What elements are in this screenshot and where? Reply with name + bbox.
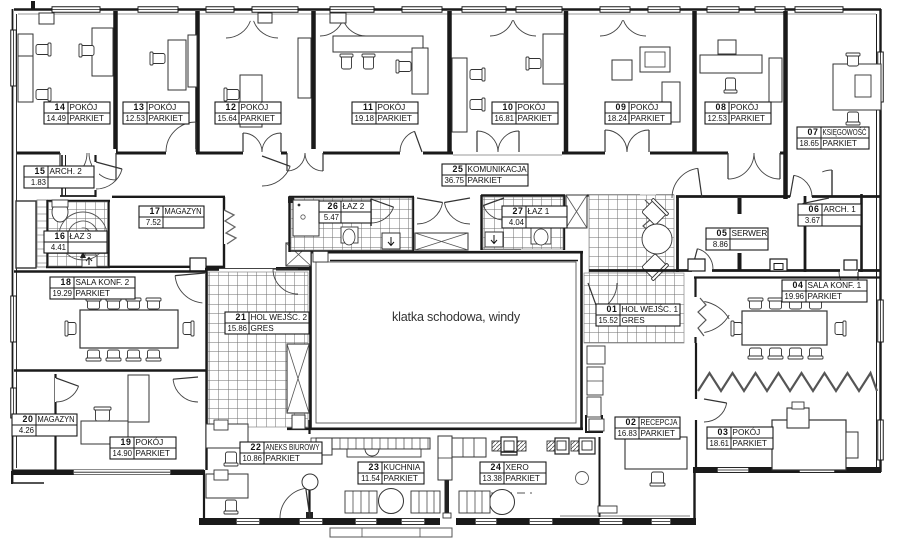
- svg-text:19.29: 19.29: [52, 289, 72, 298]
- svg-text:4.04: 4.04: [509, 218, 525, 227]
- svg-text:HOL WEJŚC. 1: HOL WEJŚC. 1: [622, 303, 679, 314]
- svg-text:POKÓJ: POKÓJ: [733, 427, 761, 437]
- svg-text:05: 05: [717, 228, 728, 238]
- svg-text:02: 02: [626, 417, 637, 427]
- svg-text:4.41: 4.41: [51, 243, 66, 252]
- svg-text:PARKIET: PARKIET: [506, 474, 540, 483]
- svg-text:18: 18: [61, 277, 72, 287]
- svg-text:POKÓJ: POKÓJ: [631, 102, 659, 112]
- svg-text:7.52: 7.52: [146, 218, 161, 227]
- svg-text:20: 20: [23, 414, 34, 424]
- svg-text:04: 04: [793, 280, 804, 290]
- svg-text:SALA KONF. 1: SALA KONF. 1: [808, 281, 862, 290]
- svg-text:KSIĘGOWOŚĆ: KSIĘGOWOŚĆ: [823, 126, 867, 137]
- svg-text:POKÓJ: POKÓJ: [149, 102, 177, 112]
- svg-text:POKÓJ: POKÓJ: [378, 102, 406, 112]
- svg-text:16.83: 16.83: [617, 429, 637, 438]
- svg-text:19: 19: [121, 437, 132, 447]
- svg-text:PARKIET: PARKIET: [823, 139, 857, 148]
- svg-text:PARKIET: PARKIET: [378, 114, 412, 123]
- svg-text:ŁAZ 3: ŁAZ 3: [70, 232, 92, 241]
- svg-text:XERO: XERO: [506, 463, 529, 472]
- svg-text:5.47: 5.47: [324, 213, 339, 222]
- svg-text:19.96: 19.96: [784, 292, 804, 301]
- svg-text:3.67: 3.67: [805, 216, 820, 225]
- svg-text:ARCH. 1: ARCH. 1: [824, 205, 857, 214]
- svg-text:PARKIET: PARKIET: [808, 292, 842, 301]
- svg-text:MAGAZYN: MAGAZYN: [38, 415, 75, 424]
- svg-text:KOMUNIKACJA: KOMUNIKACJA: [468, 165, 528, 174]
- svg-text:PARKIET: PARKIET: [136, 449, 170, 458]
- svg-text:PARKIET: PARKIET: [518, 114, 552, 123]
- svg-text:PARKIET: PARKIET: [241, 114, 275, 123]
- svg-text:17: 17: [150, 206, 161, 216]
- svg-text:19.18: 19.18: [354, 114, 374, 123]
- svg-text:18.24: 18.24: [607, 114, 627, 123]
- svg-text:25: 25: [453, 164, 464, 174]
- svg-text:PARKIET: PARKIET: [631, 114, 665, 123]
- svg-text:10.86: 10.86: [242, 454, 262, 463]
- svg-text:16: 16: [55, 231, 66, 241]
- svg-text:PARKIET: PARKIET: [76, 289, 110, 298]
- svg-text:13.38: 13.38: [482, 474, 502, 483]
- svg-text:PARKIET: PARKIET: [731, 114, 765, 123]
- svg-text:PARKIET: PARKIET: [384, 474, 418, 483]
- svg-text:PARKIET: PARKIET: [149, 114, 183, 123]
- svg-text:klatka schodowa, windy: klatka schodowa, windy: [392, 310, 521, 324]
- svg-text:15.64: 15.64: [217, 114, 237, 123]
- svg-text:18.65: 18.65: [799, 139, 819, 148]
- svg-text:POKÓJ: POKÓJ: [136, 437, 164, 447]
- svg-text:12.53: 12.53: [125, 114, 145, 123]
- svg-text:03: 03: [718, 427, 729, 437]
- svg-text:11.54: 11.54: [361, 474, 381, 483]
- svg-text:01: 01: [607, 304, 618, 314]
- svg-text:PARKIET: PARKIET: [733, 439, 767, 448]
- svg-text:15.86: 15.86: [227, 324, 247, 333]
- svg-text:PARKIET: PARKIET: [70, 114, 104, 123]
- svg-text:KUCHNIA: KUCHNIA: [384, 463, 421, 472]
- svg-text:POKÓJ: POKÓJ: [241, 102, 269, 112]
- svg-text:15.52: 15.52: [598, 316, 618, 325]
- svg-text:POKÓJ: POKÓJ: [70, 102, 98, 112]
- svg-text:11: 11: [363, 102, 374, 112]
- svg-text:SERWER: SERWER: [732, 229, 768, 238]
- svg-text:PARKIET: PARKIET: [641, 429, 675, 438]
- svg-text:POKÓJ: POKÓJ: [518, 102, 546, 112]
- svg-text:08: 08: [716, 102, 727, 112]
- svg-text:21: 21: [236, 312, 247, 322]
- svg-text:12.53: 12.53: [707, 114, 727, 123]
- svg-text:PARKIET: PARKIET: [468, 176, 502, 185]
- svg-text:SALA KONF. 2: SALA KONF. 2: [76, 278, 130, 287]
- svg-text:POKÓJ: POKÓJ: [731, 102, 759, 112]
- svg-text:HOL WEJŚC. 2: HOL WEJŚC. 2: [251, 311, 308, 322]
- svg-text:14.49: 14.49: [46, 114, 66, 123]
- svg-text:13: 13: [134, 102, 145, 112]
- svg-text:12: 12: [226, 102, 237, 112]
- svg-text:36.75: 36.75: [444, 176, 464, 185]
- svg-text:14.90: 14.90: [112, 449, 132, 458]
- svg-text:14: 14: [55, 102, 66, 112]
- svg-text:GRES: GRES: [251, 324, 275, 333]
- svg-text:15: 15: [35, 166, 46, 176]
- svg-text:ŁAZ 1: ŁAZ 1: [528, 207, 550, 216]
- svg-text:16.81: 16.81: [494, 114, 514, 123]
- svg-text:4.26: 4.26: [19, 426, 34, 435]
- svg-text:ANEKS BIUROWY: ANEKS BIUROWY: [266, 443, 320, 452]
- svg-text:RECEPCJA: RECEPCJA: [641, 418, 678, 427]
- svg-text:MAGAZYN: MAGAZYN: [165, 207, 202, 216]
- svg-text:ŁAZ 2: ŁAZ 2: [343, 202, 365, 211]
- svg-text:22: 22: [251, 442, 262, 452]
- svg-text:06: 06: [809, 204, 820, 214]
- svg-text:24: 24: [491, 462, 502, 472]
- svg-text:PARKIET: PARKIET: [266, 454, 300, 463]
- svg-text:1.83: 1.83: [31, 178, 46, 187]
- svg-text:18.61: 18.61: [709, 439, 729, 448]
- svg-text:09: 09: [616, 102, 627, 112]
- svg-text:23: 23: [369, 462, 380, 472]
- svg-text:ARCH. 2: ARCH. 2: [50, 167, 83, 176]
- svg-text:8.86: 8.86: [713, 240, 728, 249]
- svg-text:GRES: GRES: [622, 316, 646, 325]
- svg-text:07: 07: [808, 127, 819, 137]
- svg-text:10: 10: [503, 102, 514, 112]
- svg-text:27: 27: [513, 206, 524, 216]
- svg-text:26: 26: [328, 201, 339, 211]
